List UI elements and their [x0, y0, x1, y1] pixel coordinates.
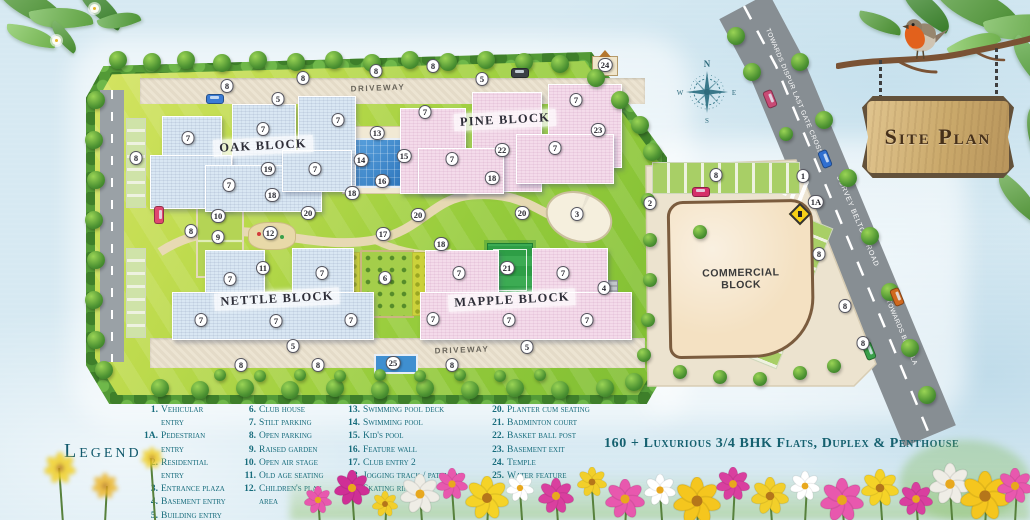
- map-marker: 7: [446, 152, 459, 166]
- flower-icon: [92, 473, 118, 499]
- tree-icon: [325, 51, 343, 69]
- driveway-bottom-label: DRIVEWAY: [434, 345, 489, 356]
- tree-icon: [87, 331, 105, 349]
- map-marker: 1: [797, 169, 810, 183]
- legend-item: 6.Club house: [236, 404, 330, 417]
- commercial-block-label: COMMERCIAL BLOCK: [695, 266, 787, 292]
- tree-icon: [643, 273, 657, 287]
- map-marker: 15: [397, 149, 412, 163]
- map-marker: 20: [515, 206, 530, 220]
- tree-icon: [374, 369, 386, 381]
- map-marker: 7: [224, 272, 237, 286]
- tree-icon: [454, 369, 466, 381]
- car-icon: [206, 94, 224, 104]
- tree-icon: [287, 53, 305, 71]
- map-marker: 8: [813, 247, 826, 261]
- tree-icon: [281, 381, 299, 399]
- open-parking-strip: [652, 162, 800, 194]
- map-marker: 14: [354, 153, 369, 167]
- map-marker: 7: [195, 313, 208, 327]
- map-marker: 8: [710, 168, 723, 182]
- compass-south-label: S: [705, 117, 709, 124]
- compass-rose-icon: N E S W: [676, 58, 738, 124]
- map-marker: 7: [309, 162, 322, 176]
- flower-icon: [861, 469, 899, 507]
- tree-icon: [294, 369, 306, 381]
- car-icon: [511, 68, 529, 78]
- map-marker: 18: [265, 188, 280, 202]
- map-marker: 7: [453, 266, 466, 280]
- flower-icon: [372, 491, 398, 517]
- map-marker: 7: [316, 266, 329, 280]
- map-marker: 18: [485, 171, 500, 185]
- legend-item: 14.Swimming pool: [340, 417, 474, 430]
- tree-icon: [791, 53, 809, 71]
- flower-icon: [820, 478, 864, 520]
- tree-icon: [109, 51, 127, 69]
- legend-item: 21.Badminton court: [484, 417, 602, 430]
- tree-icon: [779, 127, 793, 141]
- tree-icon: [693, 225, 707, 239]
- map-marker: 7: [257, 122, 270, 136]
- map-marker: 8: [185, 224, 198, 238]
- map-marker: 7: [427, 312, 440, 326]
- tagline: 160 + Luxurious 3/4 BHK Flats, Duplex & …: [604, 436, 959, 452]
- driveway-top-label: DRIVEWAY: [350, 83, 405, 94]
- map-marker: 13: [370, 126, 385, 140]
- legend-item: 16.Feature wall: [340, 444, 474, 457]
- flower-icon: [673, 477, 721, 520]
- legend-item: 15.Kid's pool: [340, 430, 474, 443]
- flower-icon: [605, 479, 645, 519]
- flower-icon: [751, 477, 789, 515]
- compass-west-label: W: [677, 89, 684, 97]
- map-marker: 10: [211, 209, 226, 223]
- car-icon: [692, 187, 710, 197]
- flower-icon: [44, 452, 76, 484]
- tree-icon: [596, 379, 614, 397]
- map-marker: 7: [503, 313, 516, 327]
- tree-icon: [401, 51, 419, 69]
- tree-icon: [249, 51, 267, 69]
- map-marker: 7: [549, 141, 562, 155]
- tree-icon: [631, 116, 649, 134]
- map-marker: 7: [570, 93, 583, 107]
- map-marker: 22: [495, 143, 510, 157]
- tree-icon: [643, 143, 661, 161]
- tree-icon: [727, 27, 745, 45]
- legend-item: 23.Basement exit: [484, 444, 602, 457]
- map-marker: 21: [500, 261, 515, 275]
- tree-icon: [151, 379, 169, 397]
- tree-icon: [494, 370, 506, 382]
- map-marker: 18: [434, 237, 449, 251]
- tree-icon: [901, 339, 919, 357]
- legend-item: 5.Building entry with handicapped ramp: [138, 510, 226, 520]
- flower-icon: [538, 478, 574, 514]
- tree-icon: [534, 369, 546, 381]
- tree-icon: [611, 91, 629, 109]
- legend-item: 4.Basement entry: [138, 496, 226, 509]
- legend-item: 22.Basket ball post: [484, 430, 602, 443]
- tree-icon: [753, 372, 767, 386]
- map-marker: 8: [297, 71, 310, 85]
- tree-icon: [87, 171, 105, 189]
- tree-icon: [918, 386, 936, 404]
- tree-icon: [506, 379, 524, 397]
- map-marker: 6: [379, 271, 392, 285]
- tree-icon: [861, 227, 879, 245]
- flower-icon: [997, 468, 1030, 504]
- pine-block: [516, 134, 614, 184]
- map-marker: 20: [411, 208, 426, 222]
- tree-icon: [85, 131, 103, 149]
- flower-icon: [644, 474, 676, 506]
- map-marker: 8: [312, 358, 325, 372]
- map-marker: 3: [571, 207, 584, 221]
- tree-icon: [87, 251, 105, 269]
- tree-icon: [815, 111, 833, 129]
- tree-icon: [625, 373, 643, 391]
- map-marker: 8: [235, 358, 248, 372]
- map-marker: 8: [839, 299, 852, 313]
- map-marker: 5: [476, 72, 489, 86]
- tree-icon: [85, 211, 103, 229]
- map-marker: 25: [386, 356, 401, 370]
- tree-icon: [551, 55, 569, 73]
- car-icon: [154, 206, 164, 224]
- map-marker: 1A: [808, 195, 824, 209]
- sign-chain-icon: [879, 60, 882, 98]
- map-marker: 5: [272, 92, 285, 106]
- tree-icon: [191, 381, 209, 399]
- map-marker: 7: [581, 313, 594, 327]
- tree-icon: [641, 313, 655, 327]
- site-plan-sign: Site Plan: [862, 96, 1014, 178]
- sign-chain-icon: [995, 48, 998, 98]
- legend-item: 13.Swimming pool deck: [340, 404, 474, 417]
- tree-icon: [743, 63, 761, 81]
- tree-icon: [371, 381, 389, 399]
- tree-icon: [254, 370, 266, 382]
- map-marker: 8: [857, 336, 870, 350]
- tree-icon: [213, 54, 231, 72]
- site-plan-poster: DRIVEWAY DRIVEWAY OAK BLOCK PINE BLOCK N…: [0, 0, 1030, 520]
- flower-icon: [790, 471, 820, 501]
- tree-icon: [439, 53, 457, 71]
- map-marker: 7: [419, 105, 432, 119]
- flower-icon: [899, 482, 933, 516]
- map-marker: 8: [446, 358, 459, 372]
- flower-icon: [400, 474, 440, 514]
- compass-north-label: N: [704, 59, 711, 69]
- robin-bird-icon: [896, 12, 950, 66]
- tree-icon: [177, 51, 195, 69]
- map-marker: 24: [598, 58, 613, 72]
- tree-icon: [673, 365, 687, 379]
- map-marker: 5: [521, 340, 534, 354]
- tree-icon: [236, 379, 254, 397]
- legend-item: 20.Planter cum seating: [484, 404, 602, 417]
- legend-item: 10.Open air stage: [236, 457, 330, 470]
- tree-icon: [143, 53, 161, 71]
- map-marker: 7: [345, 313, 358, 327]
- map-marker: 8: [130, 151, 143, 165]
- map-marker: 12: [263, 226, 278, 240]
- map-marker: 16: [375, 174, 390, 188]
- tree-icon: [793, 366, 807, 380]
- map-marker: 23: [591, 123, 606, 137]
- tree-icon: [839, 169, 857, 187]
- commercial-block: COMMERCIAL BLOCK: [667, 199, 816, 360]
- legend-item: 8.Open parking: [236, 430, 330, 443]
- map-marker: 9: [212, 230, 225, 244]
- tree-icon: [214, 369, 226, 381]
- compass-east-label: E: [732, 89, 736, 97]
- flower-icon: [465, 476, 509, 520]
- flower-icon: [506, 474, 534, 502]
- tree-icon: [551, 381, 569, 399]
- map-marker: 7: [223, 178, 236, 192]
- flower-icon: [304, 486, 332, 514]
- legend-item: 9.Raised garden: [236, 444, 330, 457]
- map-marker: 18: [345, 186, 360, 200]
- sign-title: Site Plan: [885, 124, 992, 150]
- map-marker: 8: [370, 64, 383, 78]
- flower-icon: [577, 467, 607, 497]
- legend-item: 1.Vehicular entry: [138, 404, 226, 430]
- tree-icon: [643, 233, 657, 247]
- map-marker: 4: [598, 281, 611, 295]
- tree-icon: [477, 51, 495, 69]
- tree-icon: [461, 381, 479, 399]
- map-marker: 5: [287, 339, 300, 353]
- map-marker: 8: [221, 79, 234, 93]
- flower-icon: [334, 470, 370, 506]
- map-marker: 8: [427, 59, 440, 73]
- tree-icon: [827, 359, 841, 373]
- flower-icon: [141, 447, 163, 469]
- tree-icon: [414, 370, 426, 382]
- flower-icon: [436, 468, 468, 500]
- map-marker: 17: [376, 227, 391, 241]
- map-marker: 11: [256, 261, 270, 275]
- tree-icon: [95, 361, 113, 379]
- map-marker: 7: [270, 314, 283, 328]
- tree-icon: [87, 91, 105, 109]
- tree-icon: [85, 291, 103, 309]
- map-marker: 7: [557, 266, 570, 280]
- map-marker: 2: [644, 196, 657, 210]
- tree-icon: [334, 370, 346, 382]
- legend-item: 7.Stilt parking: [236, 417, 330, 430]
- map-marker: 7: [332, 113, 345, 127]
- map-marker: 20: [301, 206, 316, 220]
- map-marker: 7: [182, 131, 195, 145]
- map-marker: 19: [261, 162, 276, 176]
- flower-icon: [716, 467, 750, 501]
- blossom-icon: [90, 4, 99, 13]
- tree-icon: [637, 348, 651, 362]
- tree-icon: [713, 370, 727, 384]
- blossom-icon: [52, 36, 61, 45]
